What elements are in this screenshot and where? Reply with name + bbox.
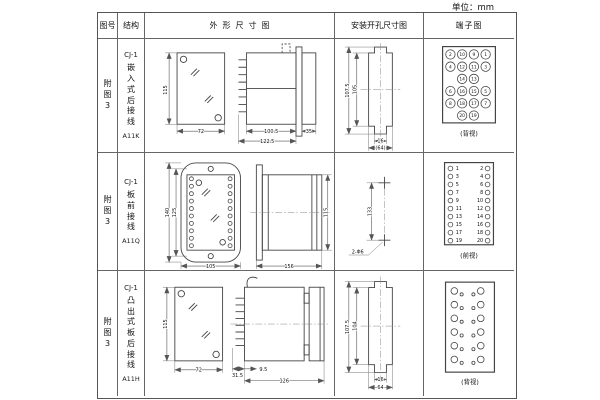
terminal-number: 9 [456,198,459,204]
dim-label: 100.5 [264,129,278,135]
mounting-cell-row1: 107.5 105 16 (64) [335,39,424,153]
dim-label: 156 [284,264,293,270]
terminal-number: 3 [484,64,487,70]
terminal-number: 5 [456,182,459,188]
dim-label: 35 [306,129,312,135]
code-row2: A11Q [122,237,140,245]
mounting-drawing-row1: 107.5 105 16 (64) [335,39,423,152]
terminal-number: 9 [472,52,475,58]
terminal-number: 18 [477,230,483,236]
view-label: (背视) [461,377,479,386]
mount-type-row3: 凸出式板后接线 [127,296,136,372]
structure-cell-row3: CJ-1 凸出式板后接线 A11H [118,271,145,396]
terminal-number: 12 [459,64,465,70]
terminal-number: 11 [456,206,462,212]
header-terminal: 端子图 [424,13,514,39]
dim-label: 115 [163,319,169,328]
header-mounting: 安装开孔尺寸图 [335,13,424,39]
terminal-number: 16 [459,89,465,95]
outline-drawing-row1: 115 72 100.5 35 122.5 [145,39,334,152]
dim-label: 107.5 [345,320,351,334]
dim-label: 140 [165,208,171,217]
terminal-number: 15 [456,222,462,228]
structure-cell-row1: CJ-1 嵌入式后接线 A11K [118,39,145,153]
terminal-cell-row1: 2 10 9 1 4 12 11 3 14 13 6 16 15 5 8 18 … [424,39,514,153]
fig-no-row2: 附图3 [103,195,112,227]
dim-label: 133 [368,207,374,216]
view-label: (前视) [460,250,478,259]
terminal-number: 19 [456,238,462,244]
fig-no-row1: 附图3 [103,79,112,111]
terminal-number: 8 [480,190,483,196]
header-outline: 外形尺寸图 [145,13,335,39]
dim-label: 31.5 [232,373,243,379]
terminal-number: 6 [449,89,452,95]
dim-label: 64 [377,385,383,391]
terminal-number: 17 [471,101,477,107]
structure-cell-row2: CJ-1 板前接线 A11Q [118,153,145,271]
dim-label: 9.5 [259,367,267,373]
fig-no-cell-row3: 附图3 [98,271,118,396]
terminal-number: 11 [471,64,477,70]
outline-cell-row3: 115 72 31.5 9.5 126 [145,271,335,396]
terminal-number: 16 [477,222,483,228]
terminal-number: 3 [456,174,459,180]
dim-label: 72 [196,368,202,374]
terminal-number: 2 [449,52,452,58]
mount-type-row1: 嵌入式后接线 [127,63,136,128]
mounting-cell-row3: 107.5 104 16 64 [335,271,424,396]
view-label: (背视) [460,129,478,138]
outline-drawing-row2: 140 125 105 156 115 [145,153,334,270]
terminal-number: 8 [449,101,452,107]
terminal-number: 20 [477,238,483,244]
terminal-number: 10 [459,52,465,58]
hole-spec-label: 2-Φ6 [352,250,364,256]
fig-no-cell-row2: 附图3 [98,153,118,271]
dim-label: 115 [163,85,169,94]
terminal-number: 2 [480,166,483,172]
terminal-number: 5 [484,89,487,95]
mount-type-row2: 板前接线 [127,190,136,233]
dim-label: 107.5 [345,83,351,97]
terminal-number: 12 [477,206,483,212]
mounting-drawing-row2: 133 2-Φ6 [335,153,423,270]
dim-label: 115 [324,208,330,217]
terminal-number: 19 [471,113,477,119]
terminal-number: 7 [456,190,459,196]
terminal-number: 1 [456,166,459,172]
spec-table: 图号 结构 外形尺寸图 安装开孔尺寸图 端子图 附图3 CJ-1 嵌入式后接线 … [97,12,517,399]
mounting-cell-row2: 133 2-Φ6 [335,153,424,271]
dim-label: (64) [375,146,385,152]
terminal-cell-row3: (背视) [424,271,514,396]
header-structure: 结构 [118,13,145,39]
dim-label: 16 [377,139,383,145]
terminal-number: 13 [471,77,477,83]
terminal-number: 7 [484,101,487,107]
terminal-number: 4 [480,174,483,180]
dim-label: 122.5 [260,139,274,145]
dim-label: 126 [280,379,289,385]
terminal-diagram-row2: 1 3 5 7 9 11 13 15 17 19 2 4 6 8 10 12 1… [424,153,514,270]
terminal-number: 14 [477,214,483,220]
terminal-number: 14 [459,77,465,83]
mounting-drawing-row3: 107.5 104 16 64 [335,271,423,396]
terminal-number: 15 [471,89,477,95]
fig-no-row3: 附图3 [103,317,112,349]
terminal-number: 1 [484,52,487,58]
terminal-number: 18 [459,101,465,107]
terminal-number: 17 [456,230,462,236]
dim-label: 105 [206,264,215,270]
model-row2: CJ-1 [124,178,138,186]
terminal-number: 20 [459,113,465,119]
outline-drawing-row3: 115 72 31.5 9.5 126 [145,271,334,396]
model-row3: CJ-1 [124,284,138,292]
terminal-number: 10 [477,198,483,204]
outline-cell-row2: 140 125 105 156 115 [145,153,335,271]
terminal-number: 6 [480,182,483,188]
model-row1: CJ-1 [124,51,138,59]
terminal-diagram-row1: 2 10 9 1 4 12 11 3 14 13 6 16 15 5 8 18 … [424,39,514,152]
terminal-number: 13 [456,214,462,220]
fig-no-cell-row1: 附图3 [98,39,118,153]
dim-label: 72 [198,129,204,135]
terminal-diagram-row3: (背视) [424,271,514,396]
dim-label: 16 [377,377,383,383]
header-fig-no: 图号 [98,13,118,39]
terminal-number: 4 [449,64,452,70]
panel-clip-dashed [282,44,290,53]
dim-label: 125 [172,208,178,217]
terminal-cell-row2: 1 3 5 7 9 11 13 15 17 19 2 4 6 8 10 12 1… [424,153,514,271]
code-row3: A11H [122,375,140,383]
code-row1: A11K [123,132,140,140]
dim-label: 104 [353,321,359,330]
dim-label: 105 [353,85,359,94]
outline-cell-row1: 115 72 100.5 35 122.5 [145,39,335,153]
